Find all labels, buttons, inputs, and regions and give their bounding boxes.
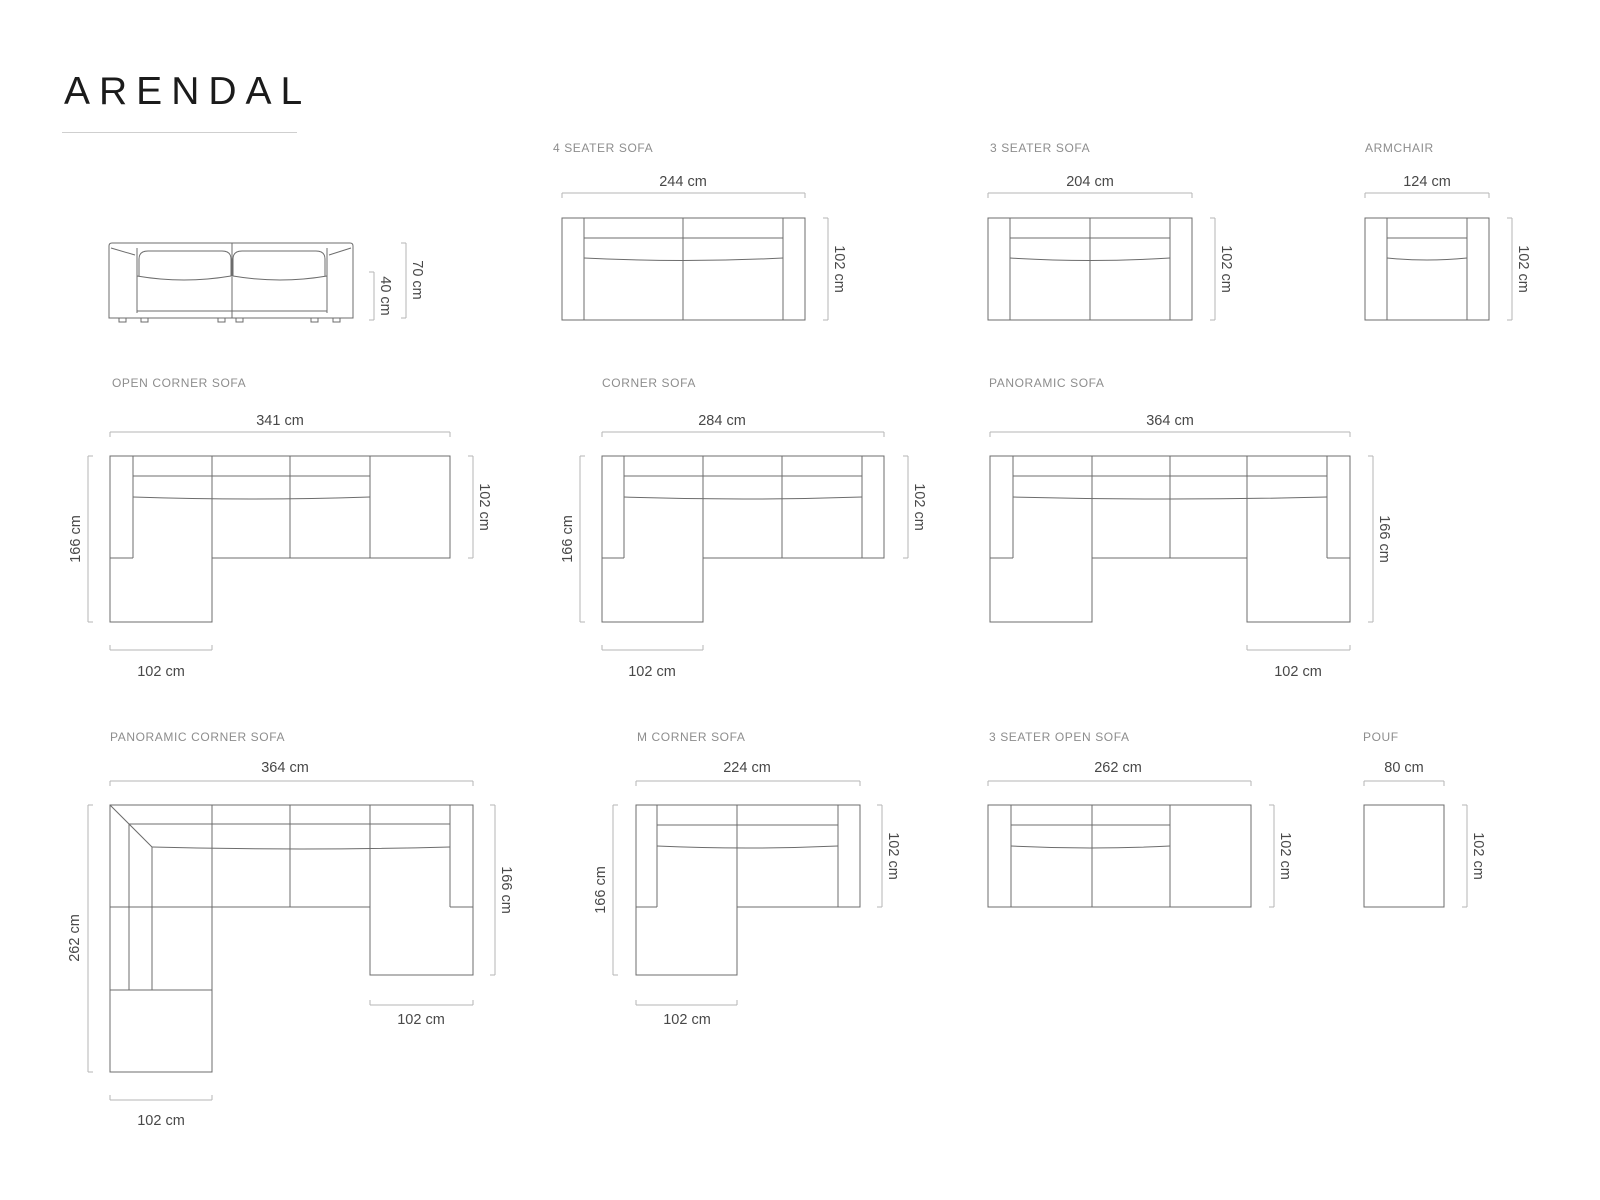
dim-line-depth-total: [580, 456, 585, 622]
dim-line-depth: [1210, 218, 1215, 320]
top-view-dividers: [703, 456, 782, 558]
dim-depth: 102 cm: [1470, 832, 1486, 880]
top-view-back-lines: [1387, 238, 1467, 260]
dim-line-depth: [823, 218, 828, 320]
dim-line-depth: [468, 456, 473, 558]
dim-line-width: [636, 781, 860, 786]
top-view-back-lines: [133, 476, 370, 499]
drawing-open-corner-sofa: OPEN CORNER SOFA 341 cm 166 cm 102 cm 10…: [68, 376, 492, 680]
dim-line-depth-total: [613, 805, 618, 975]
dim-line-chaise: [636, 1000, 737, 1005]
item-label: PANORAMIC CORNER SOFA: [110, 730, 285, 744]
item-label: OPEN CORNER SOFA: [112, 376, 246, 390]
top-view-armrests: [1387, 218, 1467, 320]
top-view-back-lines: [624, 476, 862, 499]
dim-line-chaise: [602, 645, 703, 650]
dim-depth: 102 cm: [1515, 245, 1531, 293]
top-view-dividers: [1010, 218, 1170, 320]
dim-depth: 102 cm: [831, 245, 847, 293]
dim-chaise-right: 102 cm: [397, 1012, 445, 1028]
drawing-corner-sofa: CORNER SOFA 284 cm 166 cm 102 cm 102 cm: [560, 376, 927, 680]
dim-width: 80 cm: [1384, 760, 1424, 776]
top-view-dividers: [212, 805, 370, 907]
elevation-base-and-divider: [137, 243, 327, 318]
drawing-panoramic-corner-sofa: PANORAMIC CORNER SOFA 364 cm 262 cm 166 …: [67, 730, 514, 1129]
item-label: PANORAMIC SOFA: [989, 376, 1105, 390]
dim-depth-total: 166 cm: [1376, 515, 1392, 563]
dim-line-width: [990, 432, 1350, 437]
dim-width: 262 cm: [1094, 760, 1142, 776]
dim-width: 204 cm: [1066, 174, 1114, 190]
drawing-pouf: POUF 80 cm 102 cm: [1363, 730, 1486, 907]
dim-line-depth: [1269, 805, 1274, 907]
drawing-3-seater-sofa: 3 SEATER SOFA 204 cm 102 cm: [988, 141, 1234, 320]
dim-side-right: 166 cm: [498, 866, 514, 914]
dim-line-chaise-right: [370, 1000, 473, 1005]
dim-line-width: [988, 781, 1251, 786]
dim-width: 124 cm: [1403, 174, 1451, 190]
top-view-outline: [1365, 218, 1489, 320]
dim-width: 284 cm: [698, 413, 746, 429]
top-view-armrest: [110, 456, 133, 558]
dim-width: 244 cm: [659, 174, 707, 190]
top-view-armrests: [602, 456, 862, 558]
dim-line-total-height: [401, 243, 406, 318]
drawing-3-seater-open-sofa: 3 SEATER OPEN SOFA 262 cm 102 cm: [988, 730, 1293, 907]
dimension-sheet: 40 cm 70 cm 4 SEATER SOFA 244 cm 102 cm …: [0, 0, 1600, 1200]
dim-chaise-bottom: 102 cm: [137, 1113, 185, 1129]
dim-line-width: [988, 193, 1192, 198]
dim-line-width: [1365, 193, 1489, 198]
dim-depth: 102 cm: [1277, 832, 1293, 880]
dim-width: 364 cm: [261, 760, 309, 776]
top-view-outline: [602, 456, 884, 622]
top-view-outline: [110, 456, 450, 622]
item-label: ARMCHAIR: [1365, 141, 1434, 155]
dim-width: 364 cm: [1146, 413, 1194, 429]
dim-line-seat-height: [369, 272, 374, 320]
drawing-sofa-elevation: 40 cm 70 cm: [109, 243, 425, 322]
top-view-dividers: [1092, 805, 1170, 907]
dim-line-depth: [1462, 805, 1467, 907]
top-view-back-lines: [1011, 825, 1170, 848]
top-view-outline: [988, 805, 1251, 907]
dim-side-left: 262 cm: [67, 914, 83, 962]
item-label: 3 SEATER OPEN SOFA: [989, 730, 1130, 744]
dim-chaise: 102 cm: [628, 664, 676, 680]
top-view-corner-diagonal: [110, 805, 152, 847]
dim-line-depth: [1507, 218, 1512, 320]
drawing-4-seater-sofa: 4 SEATER SOFA 244 cm 102 cm: [553, 141, 847, 320]
top-view-outline: [636, 805, 860, 975]
dim-line-width: [562, 193, 805, 198]
item-label: CORNER SOFA: [602, 376, 696, 390]
dim-seat-height: 40 cm: [377, 276, 393, 316]
drawing-armchair: ARMCHAIR 124 cm 102 cm: [1365, 141, 1531, 320]
dim-width: 224 cm: [723, 760, 771, 776]
dim-chaise: 102 cm: [1274, 664, 1322, 680]
dim-line-width: [110, 781, 473, 786]
item-label: 4 SEATER SOFA: [553, 141, 653, 155]
elevation-feet: [119, 318, 340, 322]
top-view-dividers: [1092, 456, 1247, 558]
dim-line-chaise: [110, 645, 212, 650]
dim-line-depth-total: [1368, 456, 1373, 622]
item-label: POUF: [1363, 730, 1399, 744]
dim-line-side-right: [490, 805, 495, 975]
dim-depth-total: 166 cm: [593, 866, 609, 914]
item-label: 3 SEATER SOFA: [990, 141, 1090, 155]
dim-line-depth: [877, 805, 882, 907]
arendal-dimension-sheet: { "page": { "title": "ARENDAL" }, "items…: [0, 0, 1600, 1200]
top-view-armrest: [450, 805, 473, 907]
top-view-dividers: [212, 456, 370, 558]
top-view-dividers: [584, 218, 783, 320]
top-view-leg-section-lines: [110, 907, 212, 990]
dim-width: 341 cm: [256, 413, 304, 429]
top-view-outline: [110, 805, 473, 1072]
dim-total-height: 70 cm: [409, 260, 425, 300]
dim-line-chaise-bottom: [110, 1095, 212, 1100]
dim-depth: 102 cm: [885, 832, 901, 880]
dim-depth: 102 cm: [911, 483, 927, 531]
dim-chaise: 102 cm: [663, 1012, 711, 1028]
dim-line-side-left: [88, 805, 93, 1072]
dim-depth: 102 cm: [476, 483, 492, 531]
drawing-m-corner-sofa: M CORNER SOFA 224 cm 166 cm 102 cm 102 c…: [593, 730, 901, 1028]
dim-line-chaise: [1247, 645, 1350, 650]
dim-depth-total: 166 cm: [560, 515, 576, 563]
dim-line-depth: [903, 456, 908, 558]
dim-line-width: [110, 432, 450, 437]
dim-line-width: [602, 432, 884, 437]
top-view-back-lines: [657, 825, 838, 848]
elevation-outline: [109, 243, 353, 318]
dim-line-depth-total: [88, 456, 93, 622]
drawing-panoramic-sofa: PANORAMIC SOFA 364 cm 166 cm 102 cm: [989, 376, 1392, 680]
dim-line-width: [1364, 781, 1444, 786]
dim-depth: 102 cm: [1218, 245, 1234, 293]
dim-depth-total: 166 cm: [68, 515, 84, 563]
top-view-outline: [1364, 805, 1444, 907]
dim-chaise: 102 cm: [137, 664, 185, 680]
item-label: M CORNER SOFA: [637, 730, 745, 744]
